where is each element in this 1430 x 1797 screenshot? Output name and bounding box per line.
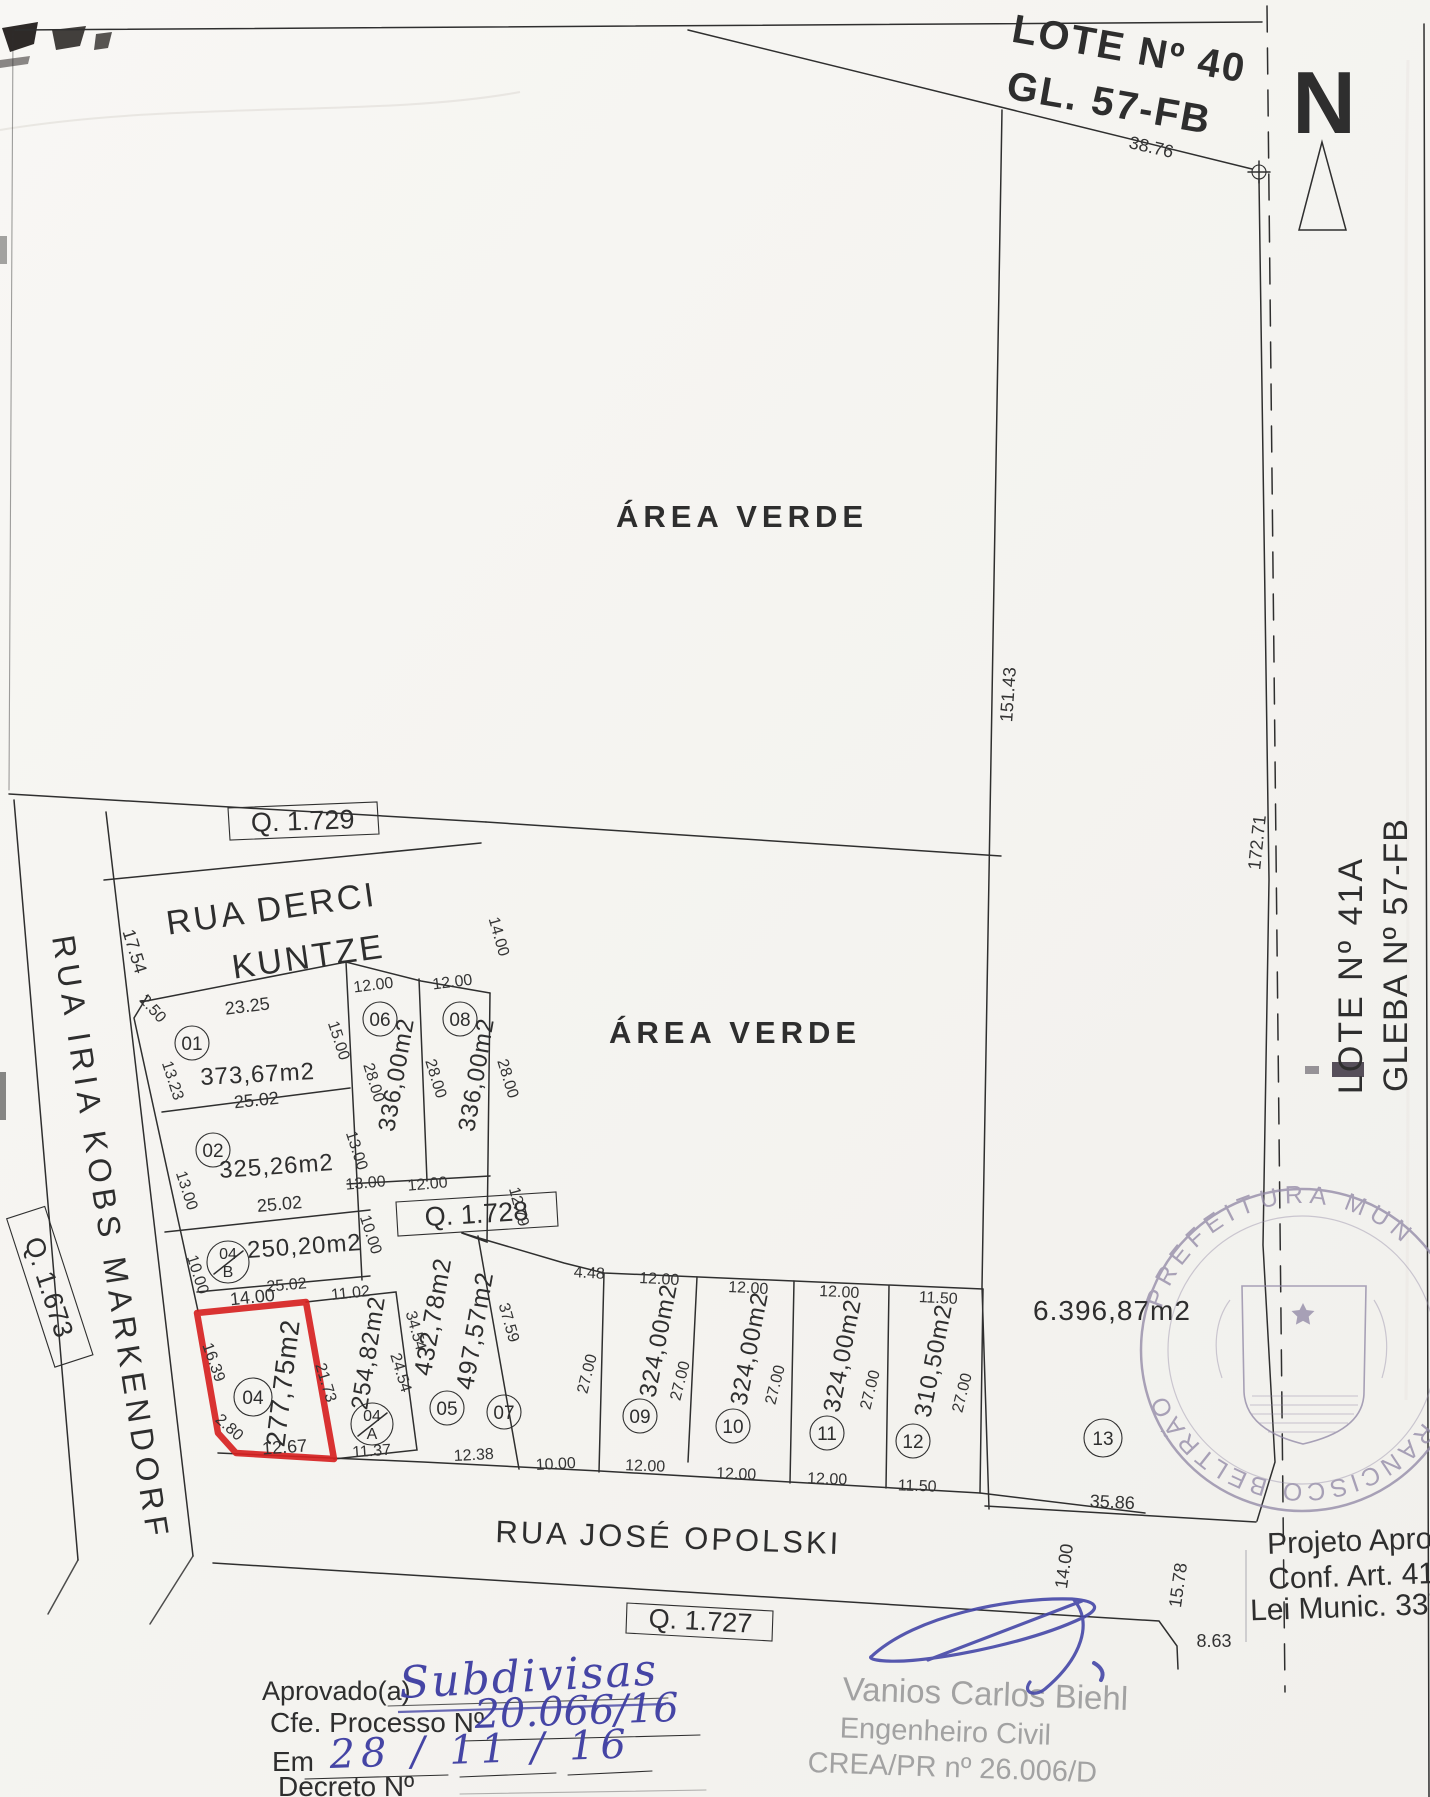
green-area-upper-label: ÁREA VERDE bbox=[616, 499, 868, 534]
svg-text:08: 08 bbox=[449, 1010, 470, 1031]
svg-text:06: 06 bbox=[369, 1010, 390, 1031]
approval-note-line: Lei Munic. 337 bbox=[1250, 1588, 1430, 1628]
dim-label: 11.37 bbox=[352, 1442, 392, 1462]
svg-text:07: 07 bbox=[493, 1403, 514, 1424]
quadra-1727-label: Q. 1.727 bbox=[648, 1603, 753, 1638]
quadra-1729-label: Q. 1.729 bbox=[250, 804, 355, 838]
dim-label: 4.48 bbox=[573, 1264, 605, 1283]
approved-label: Aprovado(a) bbox=[262, 1676, 411, 1706]
svg-text:04: 04 bbox=[219, 1246, 237, 1263]
approval-note-line: Projeto Apro bbox=[1267, 1522, 1430, 1561]
plat-map-scan: N LOTE Nº 40 GL. 57-FB 38.76 ÁREA VERDE … bbox=[0, 0, 1430, 1797]
decree-label: Decreto Nº bbox=[278, 1771, 414, 1797]
dim-label: 8.63 bbox=[1196, 1631, 1231, 1651]
svg-text:01: 01 bbox=[181, 1034, 202, 1055]
dim-label: 12.00 bbox=[407, 1174, 448, 1194]
dim-label: 25.02 bbox=[256, 1192, 303, 1216]
dim-label: 12.00 bbox=[625, 1457, 666, 1475]
svg-text:10: 10 bbox=[722, 1417, 743, 1438]
dim-label: 35.86 bbox=[1089, 1491, 1135, 1513]
svg-text:09: 09 bbox=[629, 1407, 650, 1428]
svg-text:A: A bbox=[367, 1426, 378, 1443]
svg-text:04: 04 bbox=[242, 1388, 264, 1409]
svg-text:05: 05 bbox=[436, 1399, 457, 1420]
svg-text:12: 12 bbox=[902, 1432, 923, 1453]
svg-text:13: 13 bbox=[1092, 1429, 1113, 1450]
dim-label: 11.50 bbox=[897, 1477, 937, 1495]
lote-41a-label: LOTE Nº 41A bbox=[1332, 856, 1370, 1094]
dim-label: 12.67 bbox=[261, 1435, 307, 1458]
dim-label: 12.00 bbox=[807, 1470, 848, 1488]
dim-label: 12.00 bbox=[716, 1465, 757, 1483]
svg-text:B: B bbox=[223, 1264, 234, 1281]
dim-label: 151.43 bbox=[996, 666, 1020, 722]
dim-label: 10.00 bbox=[535, 1455, 576, 1474]
gleba-57fb-label: GLEBA Nº 57-FB bbox=[1377, 818, 1415, 1092]
green-area-lower-label: ÁREA VERDE bbox=[609, 1015, 861, 1050]
dim-label: 12.38 bbox=[453, 1446, 494, 1465]
dim-label: 13.00 bbox=[345, 1173, 386, 1193]
north-label: N bbox=[1292, 53, 1356, 152]
svg-text:11: 11 bbox=[817, 1424, 837, 1445]
